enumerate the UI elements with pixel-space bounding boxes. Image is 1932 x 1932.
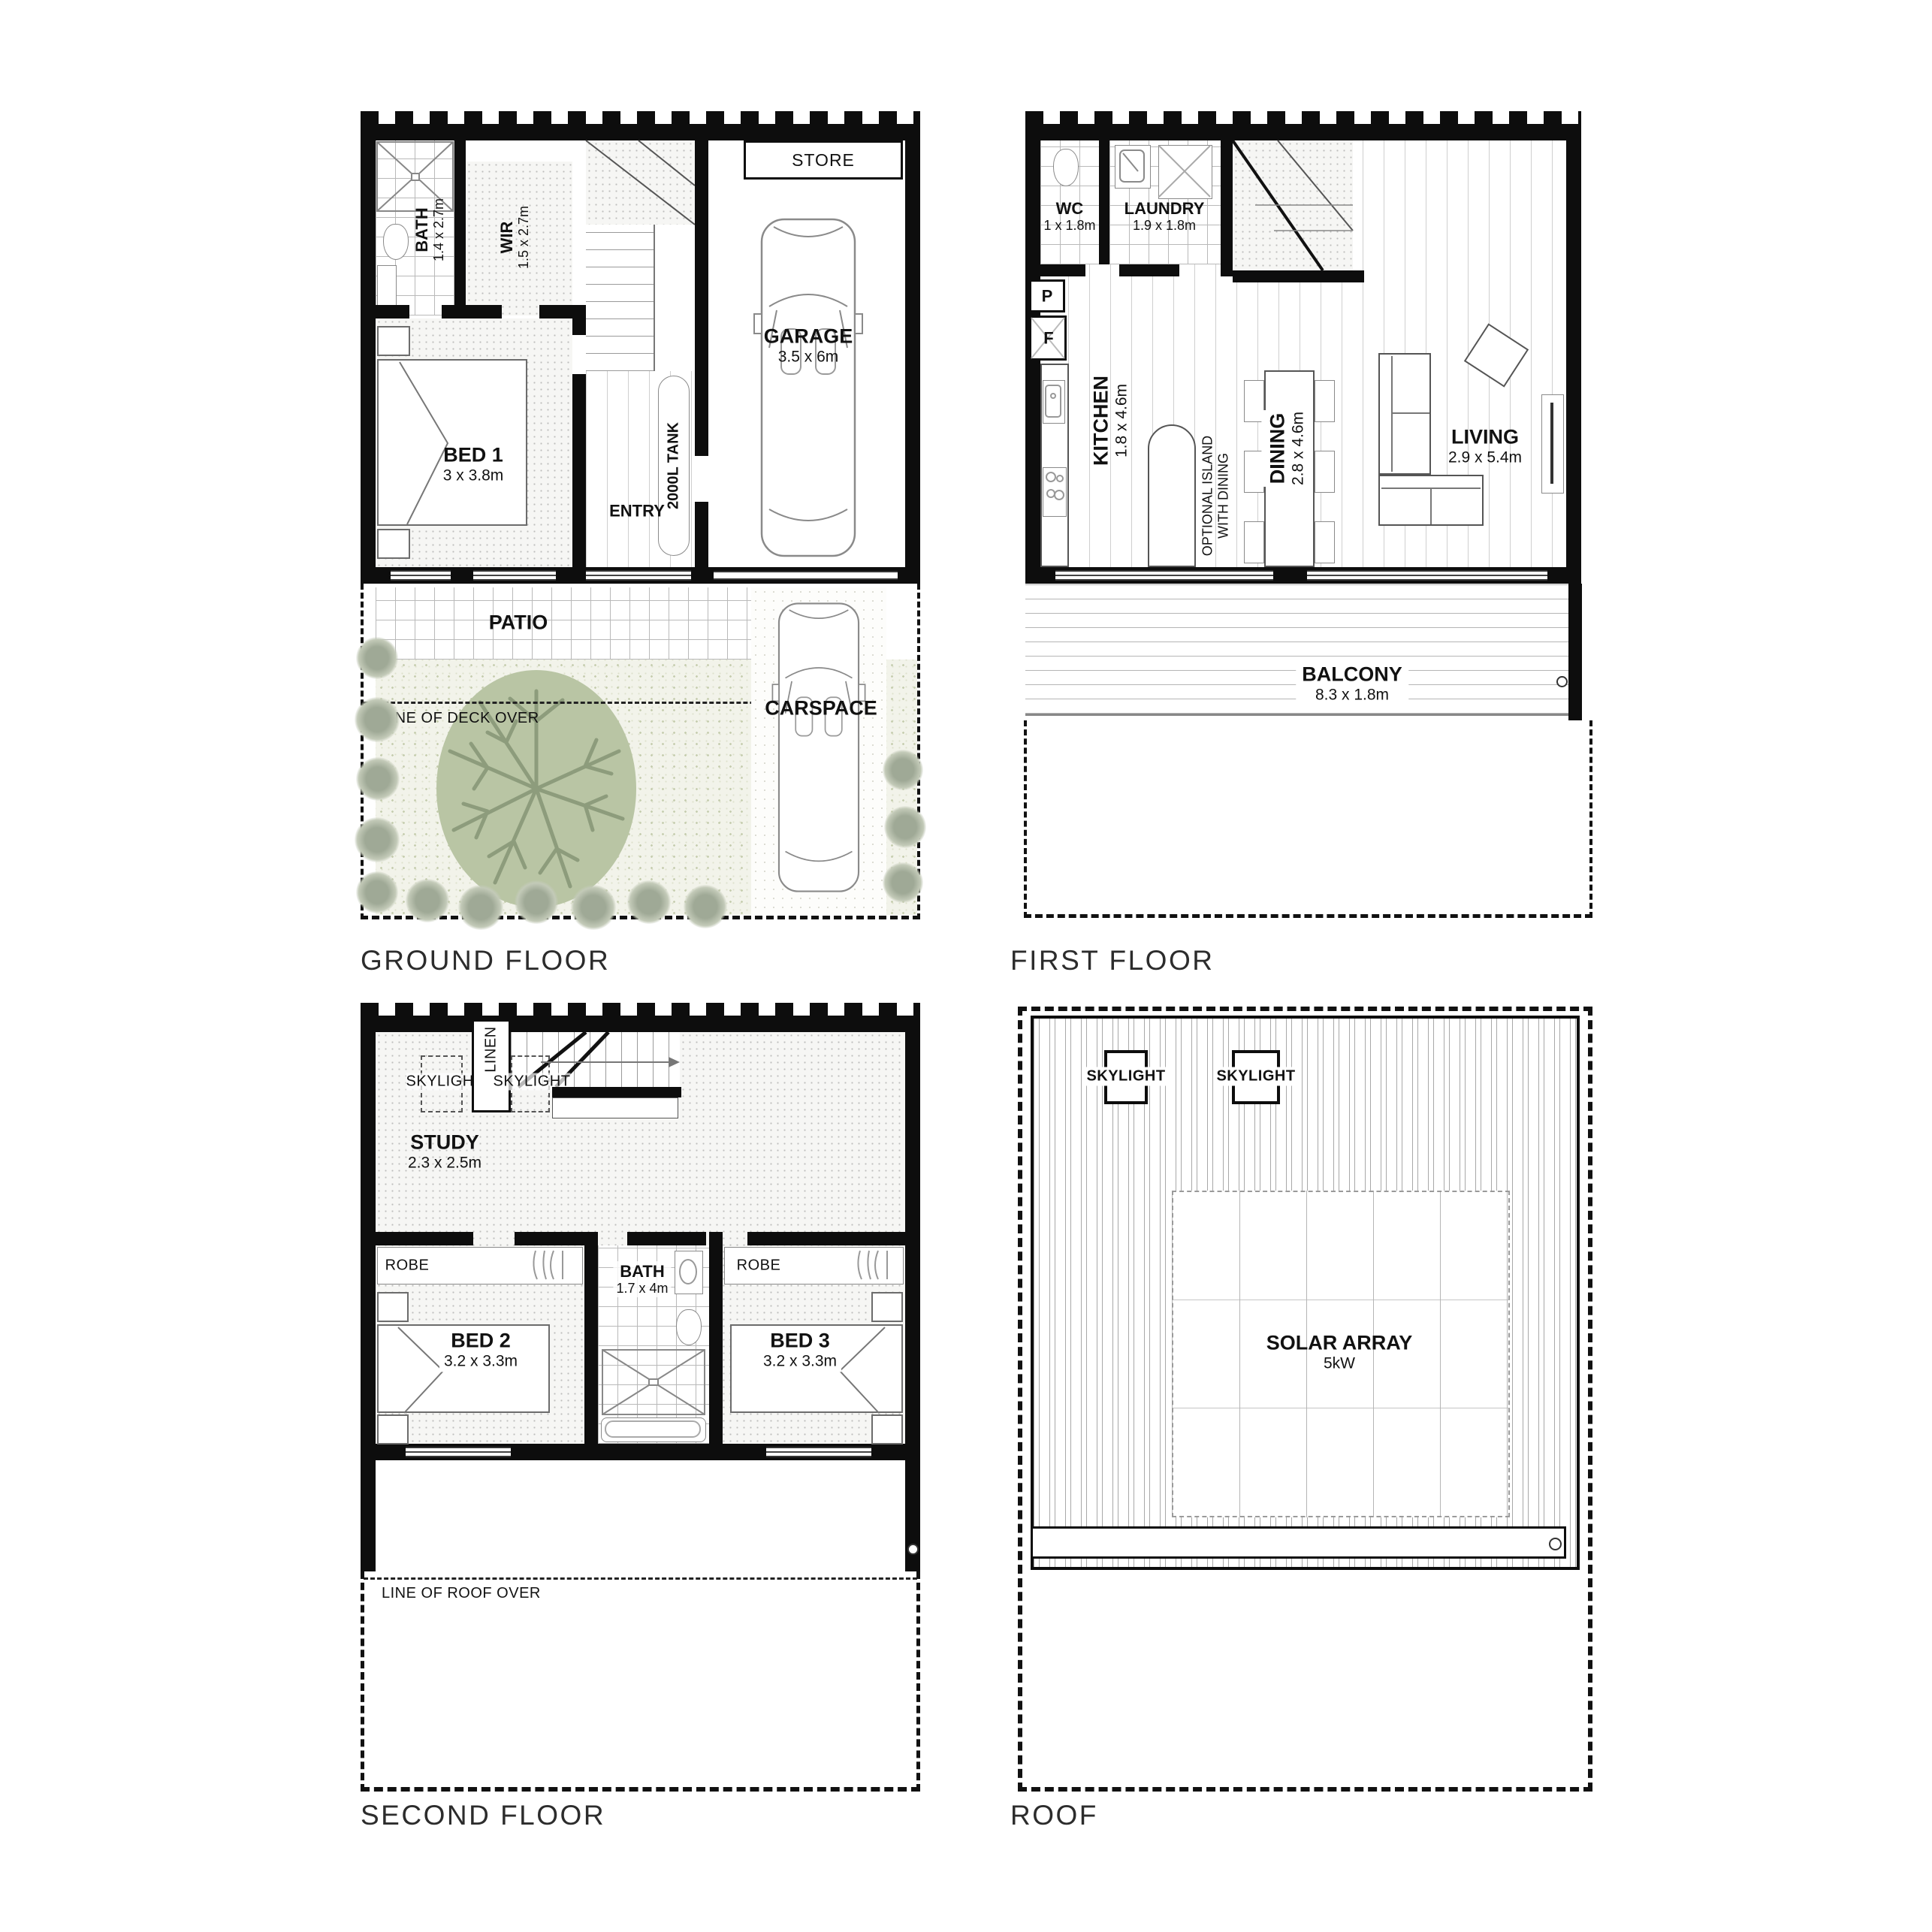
wall-laundry-bottom2 <box>1119 264 1179 276</box>
living-label: LIVING 2.9 x 5.4m <box>1448 425 1522 466</box>
washer-icon <box>1158 145 1212 199</box>
roof-title: ROOF <box>1010 1800 1098 1831</box>
second-floor-plan: SKYLIGHT LINEN SKYLIGHT STUDY 2.3 x 2.5m… <box>361 1003 933 1825</box>
linen-label: LINEN <box>483 1026 500 1072</box>
laundry-sink-icon <box>1115 145 1151 189</box>
balcony-wall-right <box>1568 584 1582 720</box>
shrub <box>515 880 558 924</box>
deck-wall-left <box>361 1460 376 1571</box>
glazed-door <box>1307 570 1547 581</box>
wall-bed1-hall <box>572 374 586 567</box>
wall-bed1-top3 <box>539 305 572 318</box>
wall-top <box>361 124 920 140</box>
wall-bed1-top2 <box>442 305 502 318</box>
wall-bed2-bath <box>584 1232 598 1459</box>
tv-unit <box>1541 394 1564 494</box>
window <box>766 1447 871 1457</box>
wall-wc-laundry <box>1099 140 1109 264</box>
ground-floor-title: GROUND FLOOR <box>361 945 610 977</box>
second-floor-title: SECOND FLOOR <box>361 1800 605 1831</box>
wall-left <box>361 124 376 584</box>
wall-hall-garage <box>695 140 708 456</box>
void-opening <box>552 1097 678 1118</box>
sofa-chaise <box>1378 475 1484 526</box>
wall-laundry-right <box>1221 140 1233 276</box>
balcony-label: BALCONY 8.3 x 1.8m <box>1296 661 1408 705</box>
wall-top <box>1025 124 1581 140</box>
patio-door <box>586 570 691 581</box>
side-table <box>871 1292 903 1322</box>
garage-door <box>714 571 898 580</box>
stair-landing <box>586 140 695 225</box>
wall-right <box>1566 124 1581 584</box>
dining-label: DINING 2.8 x 4.6m <box>1261 410 1312 487</box>
laundry-label: LAUNDRY 1.9 x 1.8m <box>1124 199 1205 234</box>
party-wall-ticks <box>361 1003 920 1016</box>
wc-label: WC 1 x 1.8m <box>1043 199 1095 234</box>
wall-bedrooms-top <box>376 1232 473 1245</box>
wall-bedrooms-top2 <box>515 1232 586 1245</box>
wall-bath-wir <box>454 140 466 315</box>
party-wall-ticks <box>1025 111 1581 124</box>
island-bench <box>1148 424 1196 567</box>
shrub <box>356 757 400 801</box>
first-floor-plan: WC 1 x 1.8m LAUNDRY 1.9 x 1.8m P F <box>1022 111 1596 924</box>
wall-bedrooms-top4 <box>747 1232 905 1245</box>
side-table <box>377 1414 409 1444</box>
bath-label: BATH 1.7 x 4m <box>613 1261 671 1297</box>
dining-chair <box>1315 380 1335 422</box>
first-floor-title: FIRST FLOOR <box>1010 945 1214 977</box>
stairs <box>586 225 655 371</box>
island-label: OPTIONAL ISLAND WITH DINING <box>1200 436 1230 556</box>
toilet-icon <box>383 224 409 260</box>
wall-bed1-hall2 <box>572 305 586 335</box>
window <box>473 570 556 581</box>
dining-chair <box>1315 451 1335 493</box>
wall-bath-bed3 <box>709 1232 723 1459</box>
toilet-icon <box>676 1309 702 1345</box>
study-label: STUDY 2.3 x 2.5m <box>408 1131 481 1172</box>
robe-right-label: ROBE <box>737 1257 781 1275</box>
side-table <box>377 326 410 356</box>
ground-floor-plan: BATH 1.4 x 2.7m WIR 1.5 x 2.7m BED 1 3 x… <box>361 111 933 924</box>
shrub <box>406 879 449 922</box>
wall-right <box>905 124 920 584</box>
shrub <box>356 637 398 679</box>
sofa <box>1378 353 1431 475</box>
entry-label: ENTRY <box>609 501 665 520</box>
wall-hall-garage2 <box>695 502 708 567</box>
bed2-label: BED 2 3.2 x 3.3m <box>439 1327 522 1372</box>
stairwell <box>1233 140 1353 270</box>
carspace-label: CARSPACE <box>765 696 877 720</box>
tree-icon <box>435 669 638 909</box>
shrub <box>356 871 398 913</box>
wall-laundry-bottom <box>1040 264 1085 276</box>
shrub <box>458 885 503 930</box>
bed3-label: BED 3 3.2 x 3.3m <box>759 1327 841 1372</box>
solar-array-label: SOLAR ARRAY 5kW <box>1266 1331 1413 1372</box>
deck-over-label: LINE OF DECK OVER <box>382 710 539 727</box>
bed1-label: BED 1 3 x 3.8m <box>443 443 504 485</box>
shrub <box>884 806 926 848</box>
store-label: STORE <box>792 150 855 170</box>
shower-icon <box>601 1348 706 1416</box>
pantry-label: P <box>1042 286 1053 305</box>
wall-left <box>361 1016 376 1460</box>
side-table <box>377 1292 409 1322</box>
bath-label: BATH 1.4 x 2.7m <box>412 198 447 261</box>
stair-void-wall <box>1233 270 1364 282</box>
skylight-label: SKYLIGHT <box>1214 1067 1297 1086</box>
shrub <box>355 817 400 862</box>
kitchen-label: KITCHEN 1.8 x 4.6m <box>1089 376 1131 466</box>
roof-plan: SKYLIGHT SKYLIGHT SOLAR ARRAY 5kW <box>1014 1003 1596 1825</box>
bathtub-icon <box>601 1417 706 1442</box>
patio-paving <box>376 587 751 660</box>
wall-top <box>361 1016 920 1032</box>
garage-label: GARAGE 3.5 x 6m <box>764 325 853 366</box>
basin-icon <box>675 1251 703 1294</box>
downpipe <box>907 1544 919 1555</box>
dining-chair <box>1315 521 1335 563</box>
wir-label: WIR 1.5 x 2.7m <box>497 206 532 269</box>
wall-right <box>905 1016 920 1460</box>
dining-chair <box>1244 521 1264 563</box>
side-table <box>871 1414 903 1444</box>
window <box>391 570 451 581</box>
downpipe <box>1549 1538 1562 1550</box>
patio-label: PATIO <box>489 611 548 634</box>
shrub <box>627 880 671 924</box>
garage-car-icon <box>759 216 858 559</box>
wall-bedrooms-top3 <box>627 1232 706 1245</box>
party-wall-ticks <box>361 111 920 124</box>
cooktop-icon <box>1043 467 1067 517</box>
window <box>406 1447 511 1457</box>
carspace-car-icon <box>770 601 868 894</box>
glazed-door <box>1055 570 1273 581</box>
shrub <box>883 750 923 790</box>
kitchen-sink-icon <box>1043 380 1065 424</box>
shrub <box>883 862 923 903</box>
tank-label: 2000L TANK <box>666 422 683 509</box>
void-balustrade <box>552 1087 681 1097</box>
yard-boundary <box>361 1571 920 1792</box>
wall-bed1-top <box>376 305 409 318</box>
skylight-label: SKYLIGHT <box>1084 1067 1167 1086</box>
downpipe <box>1556 676 1568 687</box>
toilet-icon <box>1053 149 1079 186</box>
gutter <box>1031 1526 1566 1559</box>
fridge-label: F <box>1043 328 1053 347</box>
robe-left-label: ROBE <box>385 1257 430 1275</box>
shrub <box>355 697 400 742</box>
lower-floor-outline <box>1024 720 1592 918</box>
shrub <box>684 885 727 928</box>
shrub <box>571 885 616 930</box>
side-table <box>377 529 410 559</box>
bed1-icon <box>377 359 527 526</box>
